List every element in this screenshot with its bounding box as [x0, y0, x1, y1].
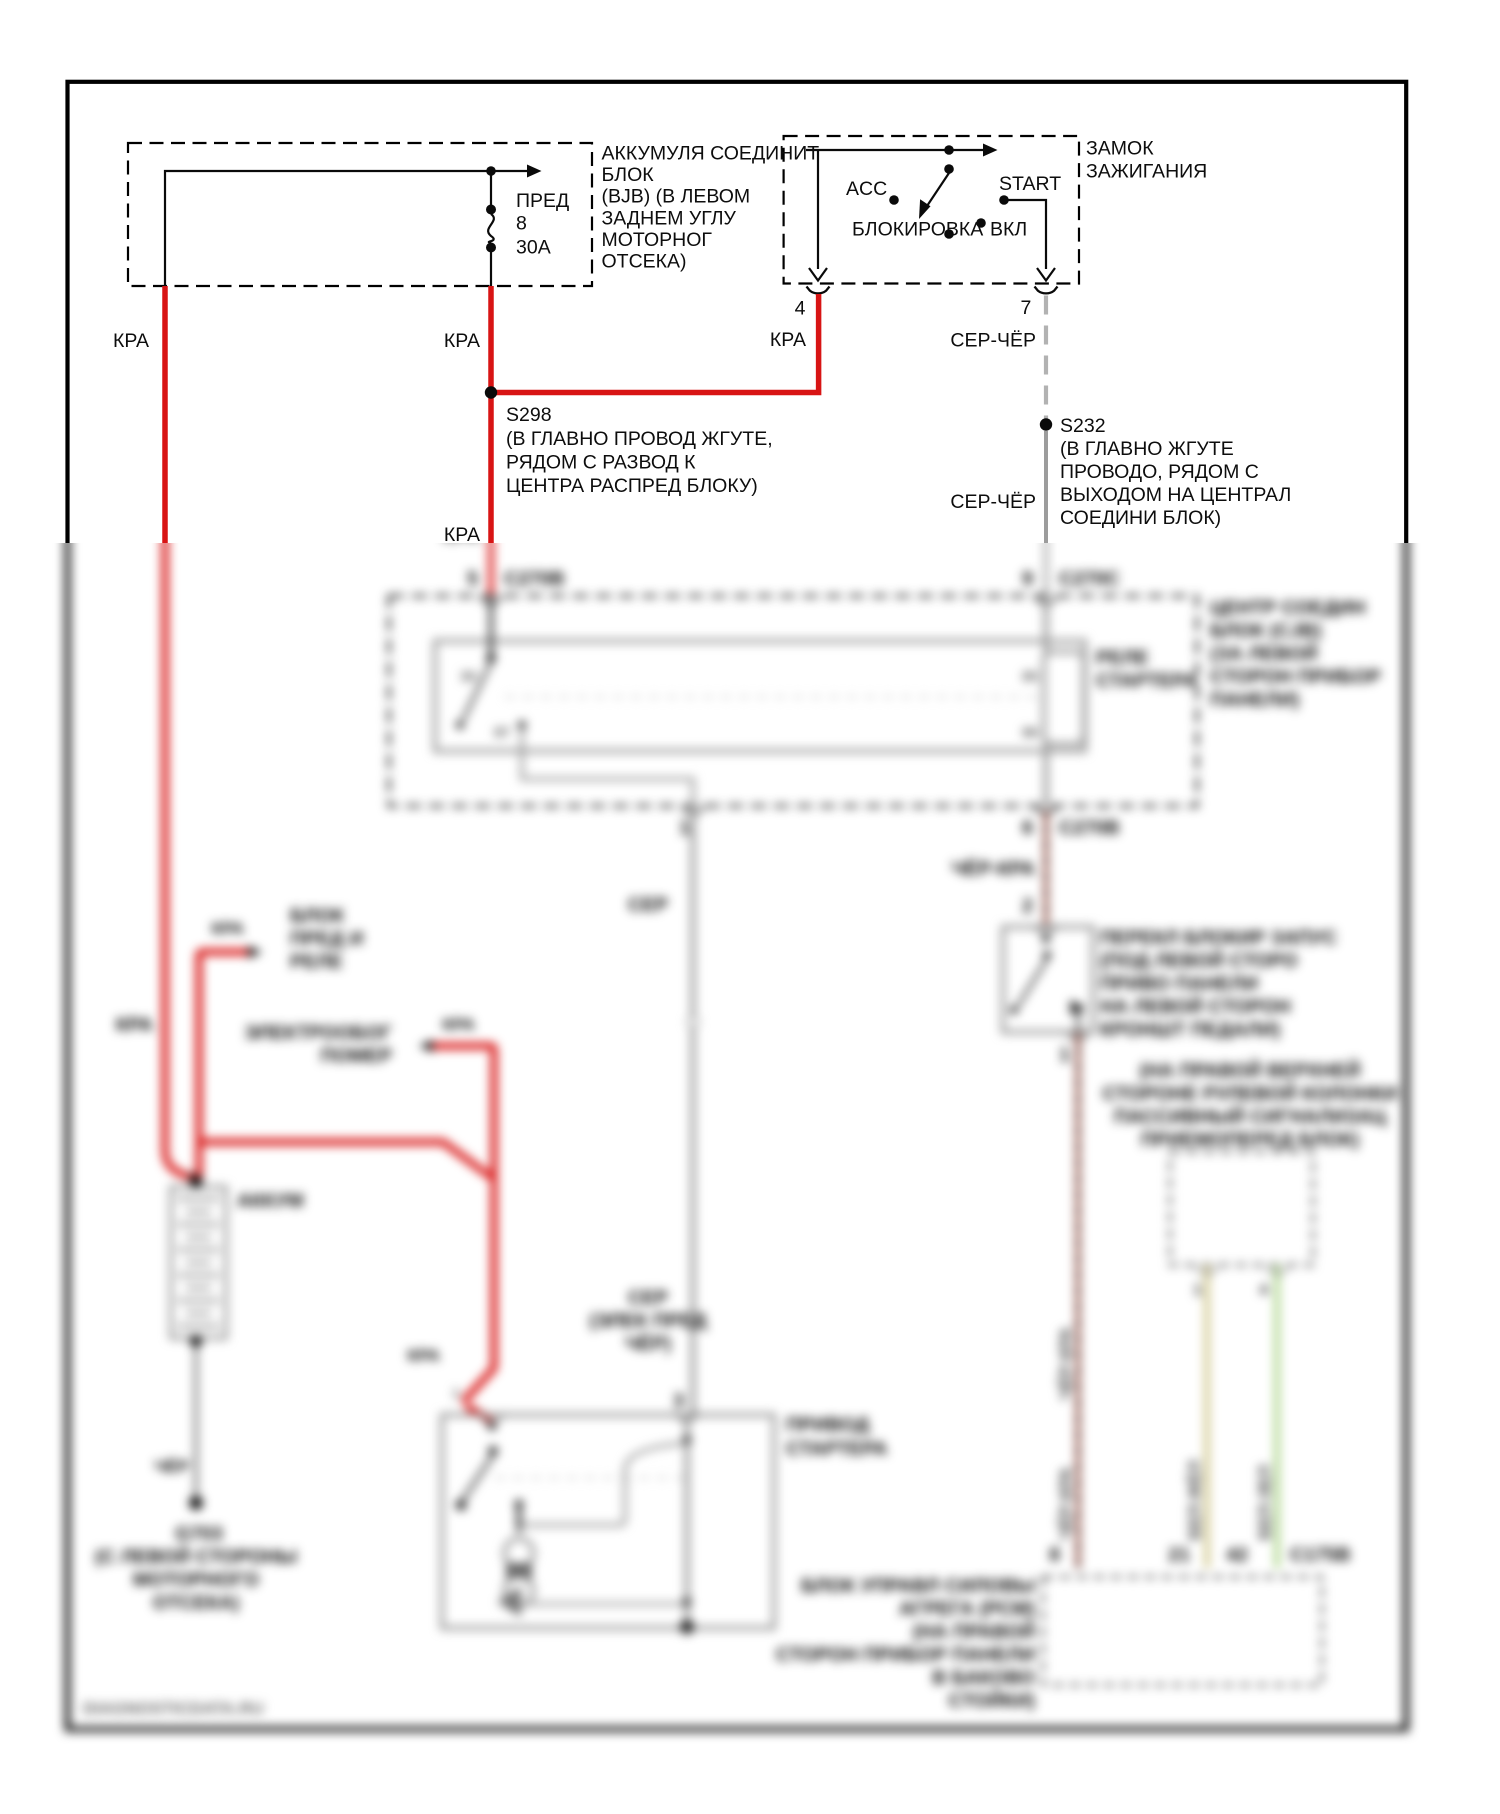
svg-text:ЧЁР-КРА: ЧЁР-КРА — [1056, 1467, 1075, 1540]
svg-text:(НА ПРАВОЙ ВЕРХНЕЙ: (НА ПРАВОЙ ВЕРХНЕЙ — [1139, 1058, 1360, 1082]
svg-text:ПРИВО ПАНЕЛИ: ПРИВО ПАНЕЛИ — [1100, 973, 1258, 995]
svg-text:АККУМ: АККУМ — [237, 1190, 304, 1212]
svg-text:7: 7 — [1020, 297, 1031, 319]
svg-text:8: 8 — [516, 213, 527, 235]
svg-text:РЕЛЕ: РЕЛЕ — [290, 951, 343, 973]
svg-text:БЛОК (CJB): БЛОК (CJB) — [1210, 620, 1322, 642]
svg-text:C175B: C175B — [1290, 1544, 1351, 1566]
svg-text:(В ГЛАВНО ЖГУТЕ: (В ГЛАВНО ЖГУТЕ — [1060, 438, 1234, 460]
svg-text:КРА: КРА — [443, 543, 480, 546]
svg-text:5: 5 — [467, 568, 478, 590]
svg-text:ЦЕНТР СОЕДИН: ЦЕНТР СОЕДИН — [1210, 597, 1365, 619]
svg-text:БЕЛ-ЗЕЛ: БЕЛ-ЗЕЛ — [1255, 1465, 1274, 1540]
svg-text:СЕР-ЧЁР: СЕР-ЧЁР — [950, 330, 1036, 352]
svg-text:ЗАМОК: ЗАМОК — [1086, 138, 1154, 160]
svg-text:СТОРОН ПРИБОР ПАНЕЛИ: СТОРОН ПРИБОР ПАНЕЛИ — [776, 1644, 1035, 1666]
svg-text:СТОРОН ПРИБОР: СТОРОН ПРИБОР — [1210, 666, 1381, 688]
svg-text:КРОНШТ ПЕДАЛИ): КРОНШТ ПЕДАЛИ) — [1100, 1019, 1280, 1041]
svg-text:ПАССИВНЫЙ СИГНАЛИЗАЦ: ПАССИВНЫЙ СИГНАЛИЗАЦ — [1114, 1104, 1387, 1128]
svg-text:ВЫХОДОМ НА ЦЕНТРАЛ: ВЫХОДОМ НА ЦЕНТРАЛ — [1060, 484, 1291, 506]
svg-text:ЭЛЕКТРООБОГ: ЭЛЕКТРООБОГ — [245, 1022, 392, 1044]
svg-text:ЧЁР): ЧЁР) — [625, 1332, 671, 1355]
svg-text:БЛОКИРОВКА: БЛОКИРОВКА — [852, 219, 983, 241]
svg-text:АГРЕГА (РСМ): АГРЕГА (РСМ) — [899, 1598, 1035, 1620]
svg-text:START: START — [999, 173, 1061, 195]
svg-text:СЕР: СЕР — [628, 1287, 668, 1309]
svg-text:(С ЛЕВОЙ СТОРОНЫ: (С ЛЕВОЙ СТОРОНЫ — [95, 1544, 297, 1568]
svg-text:1: 1 — [679, 817, 690, 839]
svg-text:НА ЛЕВОЙ СТОРОН: НА ЛЕВОЙ СТОРОН — [1100, 994, 1291, 1018]
svg-text:85: 85 — [1022, 668, 1038, 684]
svg-text:ЧЁР-КРА: ЧЁР-КРА — [951, 857, 1035, 880]
svg-text:42: 42 — [1226, 1544, 1248, 1566]
svg-text:ACC: ACC — [846, 178, 887, 200]
svg-text:ПАНЕЛИ): ПАНЕЛИ) — [1210, 689, 1299, 711]
svg-text:ПРЕД И: ПРЕД И — [290, 928, 363, 950]
svg-text:КРА: КРА — [444, 524, 480, 543]
svg-text:C270B: C270B — [1059, 817, 1120, 839]
svg-text:8: 8 — [1049, 1544, 1060, 1566]
svg-text:ЗАДНЕМ УГЛУ: ЗАДНЕМ УГЛУ — [602, 207, 737, 229]
svg-text:КРА: КРА — [444, 330, 480, 352]
svg-text:ПОМЕР: ПОМЕР — [321, 1045, 392, 1067]
svg-text:АККУМУЛЯ СОЕДИНИТ: АККУМУЛЯ СОЕДИНИТ — [602, 143, 820, 165]
svg-text:ЗАЖИГАНИЯ: ЗАЖИГАНИЯ — [1086, 161, 1207, 183]
svg-text:КРА: КРА — [116, 1014, 153, 1036]
svg-text:(ЭЛЕК ПРЕД: (ЭЛЕК ПРЕД — [589, 1310, 707, 1332]
svg-text:БЛОК: БЛОК — [290, 905, 344, 927]
svg-text:ВКЛ: ВКЛ — [990, 219, 1027, 241]
svg-text:СТАРТЕРА: СТАРТЕРА — [786, 1438, 887, 1460]
svg-text:6: 6 — [1022, 817, 1033, 839]
svg-text:ПРИЕМОПЕРЕД БЛОК): ПРИЕМОПЕРЕД БЛОК) — [1141, 1129, 1360, 1151]
svg-text:S298: S298 — [506, 404, 552, 426]
svg-text:21: 21 — [1168, 1544, 1190, 1566]
svg-text:(ПОД ЛЕВОЙ СТОРО: (ПОД ЛЕВОЙ СТОРО — [1100, 948, 1298, 972]
svg-text:(НА ПРАВОЙ: (НА ПРАВОЙ — [913, 1619, 1035, 1643]
svg-text:СЕР-ЧЁР: СЕР-ЧЁР — [950, 491, 1036, 513]
svg-text:СТОРОНЕ РУЛЕВОЙ КОЛОНКИ: СТОРОНЕ РУЛЕВОЙ КОЛОНКИ — [1102, 1081, 1397, 1105]
svg-text:МОТОРНОГ: МОТОРНОГ — [602, 229, 713, 251]
svg-text:C270C: C270C — [1059, 568, 1120, 590]
svg-text:ПРЕД: ПРЕД — [516, 190, 569, 212]
svg-text:КРА: КРА — [212, 919, 245, 938]
svg-text:G703: G703 — [175, 1523, 223, 1545]
svg-text:СОЕДИНИ БЛОК): СОЕДИНИ БЛОК) — [1060, 507, 1221, 529]
svg-text:СТОЙКИ): СТОЙКИ) — [948, 1688, 1035, 1712]
svg-text:4: 4 — [795, 298, 806, 320]
svg-text:КРА: КРА — [408, 1346, 441, 1365]
svg-text:1: 1 — [1193, 1282, 1202, 1299]
svg-text:ПРИВОД: ПРИВОД — [786, 1414, 870, 1436]
svg-text:ПРОВОДО, РЯДОМ С: ПРОВОДО, РЯДОМ С — [1060, 461, 1259, 483]
svg-text:(В ГЛАВНО ПРОВОД ЖГУТЕ,: (В ГЛАВНО ПРОВОД ЖГУТЕ, — [506, 428, 773, 450]
svg-text:9: 9 — [1022, 568, 1033, 590]
svg-text:СТАРТЕРА: СТАРТЕРА — [1096, 670, 1197, 692]
svg-text:МОТОРНОГО: МОТОРНОГО — [133, 1569, 259, 1591]
svg-text:КРА: КРА — [113, 330, 149, 352]
svg-text:2: 2 — [1022, 895, 1033, 917]
svg-text:C270B: C270B — [504, 568, 565, 590]
svg-text:БЕЛ-ЖЁЛ: БЕЛ-ЖЁЛ — [1185, 1460, 1204, 1540]
svg-text:ЧЁР: ЧЁР — [154, 1457, 189, 1476]
svg-text:1: 1 — [452, 1385, 460, 1401]
svg-text:(ЗА ЛЕВОЙ: (ЗА ЛЕВОЙ — [1210, 641, 1318, 665]
svg-text:КРА: КРА — [770, 329, 806, 351]
svg-text:DIAGNOSTICDATA.RU: DIAGNOSTICDATA.RU — [83, 1699, 264, 1718]
svg-text:БЛОК: БЛОК — [602, 164, 655, 186]
svg-text:РЯДОМ С РАЗВОД К: РЯДОМ С РАЗВОД К — [506, 451, 696, 473]
svg-text:РЕЛЕ: РЕЛЕ — [1096, 647, 1149, 669]
svg-text:ЦЕНТРА РАСПРЕД БЛОКУ): ЦЕНТРА РАСПРЕД БЛОКУ) — [506, 475, 758, 497]
svg-text:30А: 30А — [516, 237, 551, 259]
svg-text:ОТСЕКА): ОТСЕКА) — [153, 1592, 240, 1614]
svg-text:БЛОК УПРАВЛ СИЛОВЫ: БЛОК УПРАВЛ СИЛОВЫ — [801, 1575, 1035, 1597]
svg-text:(BJB) (В ЛЕВОМ: (BJB) (В ЛЕВОМ — [602, 186, 751, 208]
svg-text:ЧЁР-КРА: ЧЁР-КРА — [1056, 1327, 1075, 1400]
svg-text:ОТСЕКА): ОТСЕКА) — [602, 251, 687, 273]
svg-text:1: 1 — [1059, 1044, 1070, 1066]
svg-text:86: 86 — [1022, 724, 1038, 740]
svg-text:87: 87 — [494, 724, 510, 740]
svg-text:4: 4 — [1259, 1282, 1268, 1299]
svg-text:30: 30 — [460, 668, 476, 684]
svg-text:СЕР: СЕР — [628, 894, 668, 916]
svg-text:3: 3 — [673, 1390, 684, 1412]
svg-text:S232: S232 — [1060, 415, 1106, 437]
svg-text:В БАКОВО: В БАКОВО — [932, 1667, 1035, 1689]
svg-text:КРА: КРА — [443, 1015, 476, 1034]
svg-text:ПЕРЕКЛ БЛОКИР ЗАПУС: ПЕРЕКЛ БЛОКИР ЗАПУС — [1100, 927, 1337, 949]
